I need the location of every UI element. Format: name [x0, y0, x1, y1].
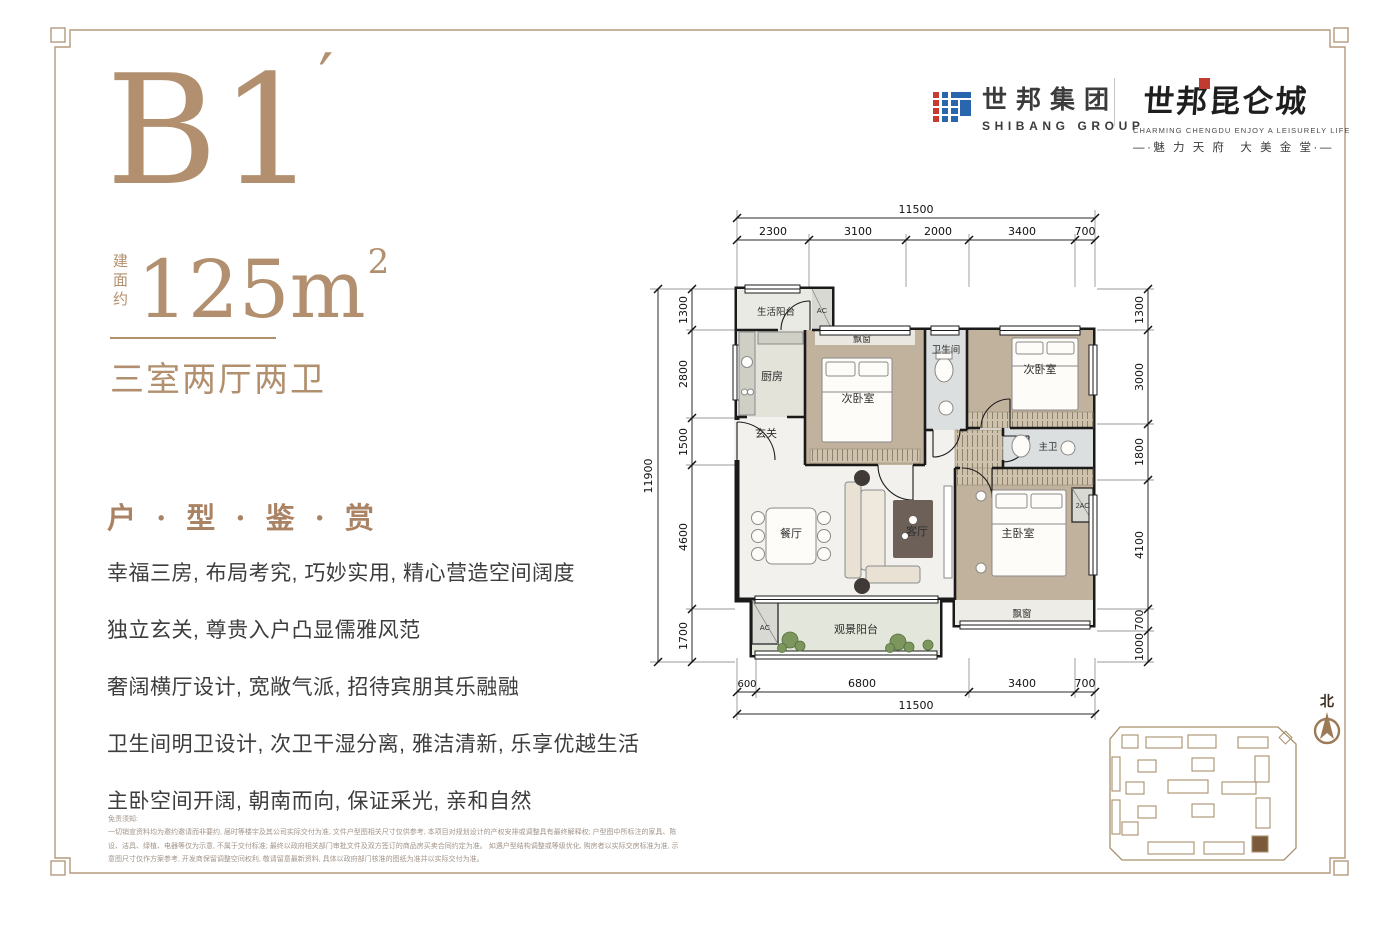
- project-tagline-en: CHARMING CHENGDU ENJOY A LEISURELY LIFE: [1133, 126, 1319, 135]
- toilet-icon: [935, 358, 953, 382]
- dim-label: 4600: [677, 523, 690, 551]
- project-seal-icon: [1199, 78, 1210, 89]
- room-label-ac-top: AC: [817, 306, 828, 315]
- dim-label: 600: [737, 679, 756, 690]
- room-label-foyer: 玄关: [755, 426, 777, 440]
- room-label-bedroom-2: 次卧室: [842, 391, 875, 405]
- dim-label: 700: [1133, 610, 1146, 631]
- dim-label: 700: [1075, 677, 1096, 690]
- dim-label: 11500: [899, 699, 934, 712]
- room-label-kitchen: 厨房: [761, 370, 783, 383]
- site-buildings: [1112, 735, 1270, 854]
- room-label-ac-balcony: AC: [760, 623, 771, 632]
- divider-rule: [110, 337, 276, 339]
- frame-corner-square-tr: [1334, 28, 1348, 42]
- feature-item: 幸福三房, 布局考究, 巧妙实用, 精心营造空间阔度: [107, 557, 667, 587]
- disclaimer: 免责须知: 一切销宣资料均为邀约邀请而非要约, 届时等楼宇及其公司实际交付为准,…: [108, 813, 683, 866]
- unit-code: B1′: [106, 44, 333, 211]
- tv-cabinet-icon: [944, 486, 952, 578]
- dim-label: 3100: [844, 225, 872, 238]
- dim-label: 1800: [1133, 438, 1146, 466]
- dim-label: 1300: [677, 296, 690, 324]
- project-logo: 世邦昆仑城 CHARMING CHENGDU ENJOY A LEISURELY…: [1133, 76, 1319, 155]
- dim-label: 3400: [1008, 677, 1036, 690]
- dim-label: 1300: [1133, 296, 1146, 324]
- dim-label: 11500: [899, 203, 934, 216]
- project-slogan: —·魅 力 天 府 大 美 金 堂·—: [1133, 139, 1319, 155]
- frame-corner-square-tl: [51, 28, 65, 42]
- feature-item: 主卧空间开阔, 朝南而向, 保证采光, 亲和自然: [107, 785, 667, 815]
- dim-label: 6800: [848, 677, 876, 690]
- feature-item: 卫生间明卫设计, 次卫干湿分离, 雅洁清新, 乐享优越生活: [107, 728, 667, 758]
- room-label-bay-window-2: 飘窗: [1012, 608, 1031, 620]
- room-label-ac-2: 2AC: [1076, 503, 1090, 510]
- group-logo-text: 世邦集团 SHIBANG GROUP: [982, 80, 1144, 133]
- sofa-icon: [845, 482, 861, 578]
- toilet-icon: [1012, 435, 1030, 457]
- dim-label: 1500: [677, 428, 690, 456]
- dim-label: 2300: [759, 225, 787, 238]
- dim-label: 4100: [1133, 531, 1146, 559]
- floorplan-drawing: 11500 2300 3100 2000 3400 700 11900 1300…: [620, 175, 1180, 740]
- dim-label: 1700: [677, 622, 690, 650]
- dim-label: 2800: [677, 360, 690, 388]
- room-label-service-balcony: 生活阳台: [757, 306, 795, 318]
- feature-item: 奢阔横厅设计, 宽敞气派, 招待宾朋其乐融融: [107, 671, 667, 701]
- compass-north-label: 北: [1320, 693, 1334, 709]
- floorplan-flyer-page: B1′ 建面约 125m2 三室两厅两卫 户 · 型 · 鉴 · 赏 幸福三房,…: [0, 0, 1400, 933]
- dim-label: 3000: [1133, 363, 1146, 391]
- room-label-bathroom: 卫生间: [932, 344, 961, 356]
- room-label-bedroom-3: 次卧室: [1024, 362, 1057, 376]
- frame-corner-square-bl: [51, 861, 65, 875]
- dim-label: 3400: [1008, 225, 1036, 238]
- area-number: 125m: [137, 243, 366, 336]
- room-label-view-balcony: 观景阳台: [834, 622, 878, 636]
- room-label-master-bedroom: 主卧室: [1002, 526, 1035, 540]
- unit-area: 建面约 125m2: [110, 248, 389, 324]
- disclaimer-title: 免责须知:: [108, 813, 683, 826]
- shibang-group-logo-icon: [933, 89, 973, 125]
- group-logo: 世邦集团 SHIBANG GROUP: [933, 80, 1144, 133]
- room-label-dining: 餐厅: [780, 526, 802, 540]
- unit-code-prime: ′: [318, 40, 333, 117]
- dim-label: 2000: [924, 225, 952, 238]
- area-prefix: 建面约: [110, 253, 131, 310]
- feature-list: 幸福三房, 布局考究, 巧妙实用, 精心营造空间阔度 独立玄关, 尊贵入户凸显儒…: [107, 557, 667, 842]
- logo-divider: [1114, 78, 1115, 126]
- dim-label: 1000: [1133, 633, 1146, 661]
- group-name-cn: 世邦集团: [982, 80, 1144, 116]
- unit-code-text: B1: [106, 42, 318, 219]
- room-label-living: 客厅: [906, 524, 928, 538]
- room-label-master-bath: 主卫: [1038, 441, 1058, 453]
- north-arrow-icon: 北: [1315, 693, 1339, 743]
- layout-type: 三室两厅两卫: [110, 352, 326, 401]
- area-exponent: 2: [368, 242, 390, 282]
- highlighted-building: [1252, 836, 1268, 852]
- area-value: 125m2: [137, 248, 389, 324]
- site-plan: 北: [1095, 668, 1365, 878]
- feature-item: 独立玄关, 尊贵入户凸显儒雅风范: [107, 614, 667, 644]
- dim-label: 700: [1075, 225, 1096, 238]
- section-title: 户 · 型 · 鉴 · 赏: [107, 495, 379, 537]
- dim-label: 11900: [642, 459, 655, 494]
- group-name-en: SHIBANG GROUP: [982, 119, 1144, 133]
- room-label-bay-window-1: 飘窗: [853, 333, 871, 344]
- project-name-cn: 世邦昆仑城: [1131, 76, 1320, 121]
